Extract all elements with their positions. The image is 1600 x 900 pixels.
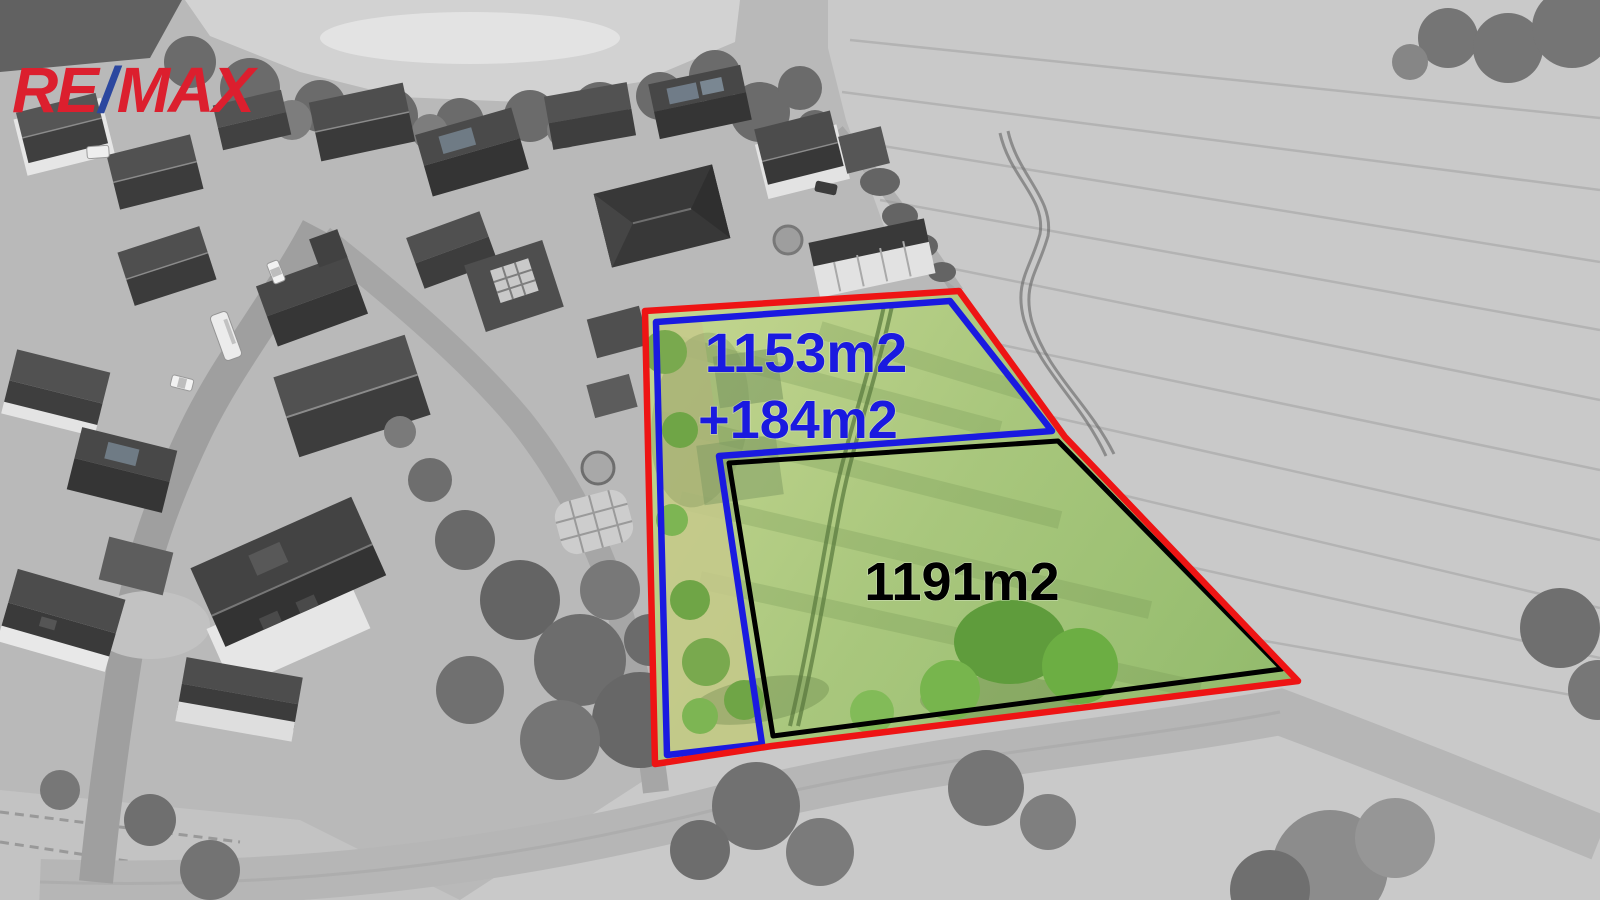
house-roof-large [181,497,403,690]
listing-photo: 1153m2 +184m2 1191m2 RE/MAX [0,0,1600,900]
house-roof-solar [67,427,178,513]
garage-row [808,218,935,297]
parcel-a-extra-label: +184m2 [698,390,898,450]
remax-logo-re: RE [12,54,97,126]
parcel-a-area-label: 1153m2 [705,321,907,384]
garden-pool [774,226,802,254]
shed-roof [586,374,637,418]
house-roof [107,134,204,209]
remax-logo: RE/MAX [12,58,253,122]
house-roof [0,569,125,672]
house-roof-long [175,657,302,742]
remax-logo-slash: / [97,54,117,126]
shed-roof [587,306,650,359]
white-car [87,145,110,159]
house-roof [1,349,110,436]
dark-car [814,180,838,195]
house-roof [117,226,216,306]
house-roof-hipped [594,164,731,267]
parcel-b-area-label: 1191m2 [864,552,1059,612]
lake-reflection [320,12,620,64]
garden-pool [582,452,614,484]
center-tree-cluster [384,416,688,780]
white-car [170,375,194,392]
remax-logo-max: MAX [117,54,253,126]
aerial-photo: 1153m2 +184m2 1191m2 [0,0,1600,900]
